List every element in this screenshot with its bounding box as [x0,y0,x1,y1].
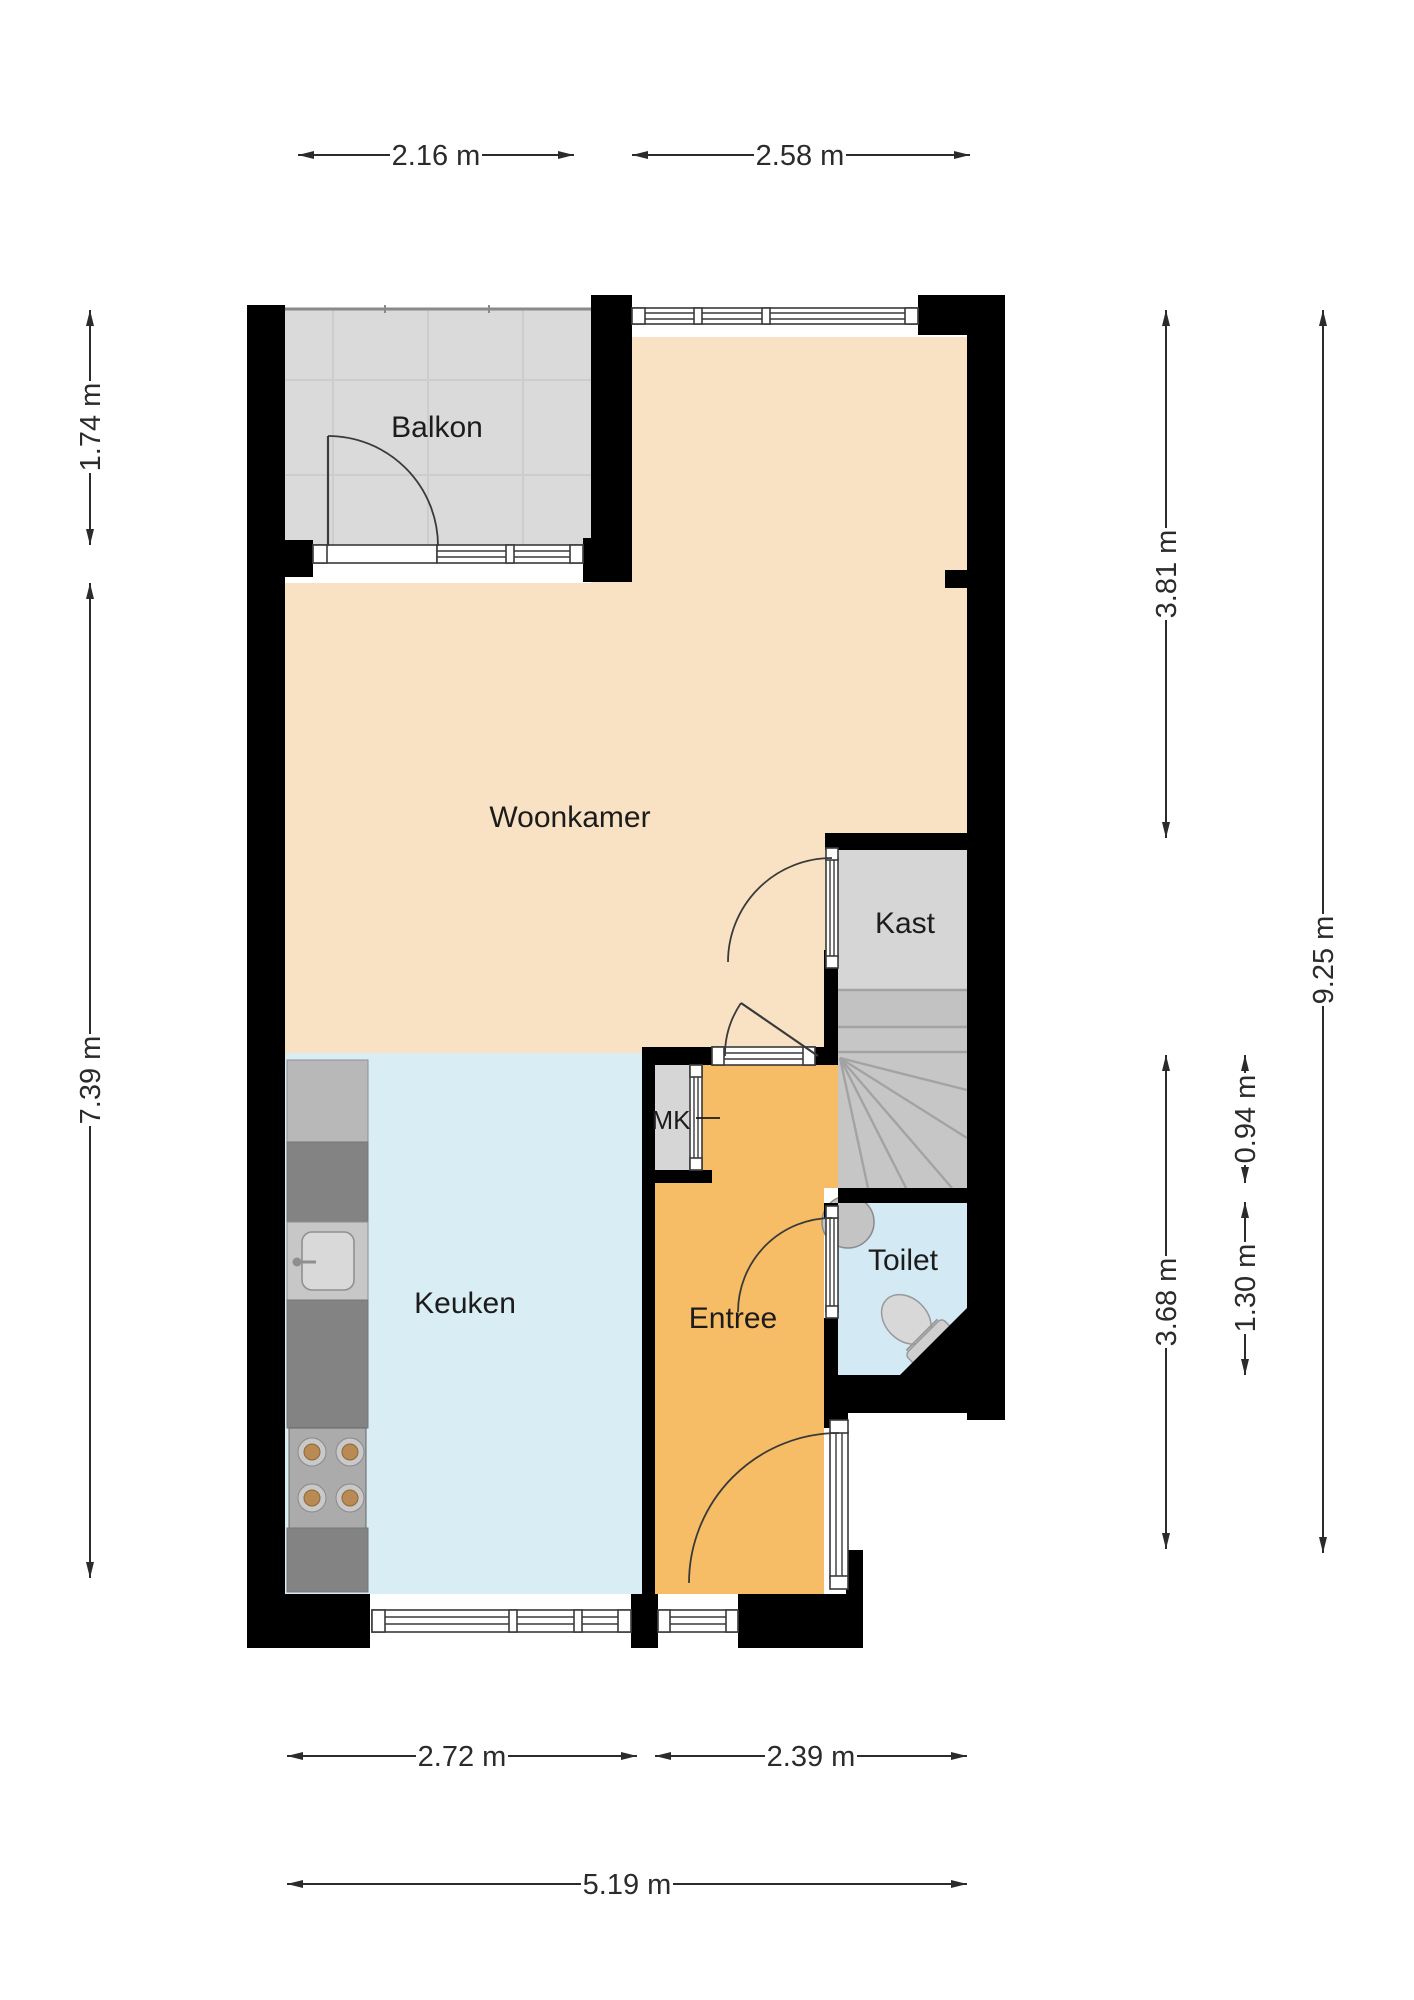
label-woonkamer: Woonkamer [489,801,650,834]
svg-text:2.39 m: 2.39 m [767,1741,856,1773]
dim-right-toilet-height: 1.30 m [1228,1202,1262,1375]
svg-text:2.16 m: 2.16 m [392,140,481,172]
counter-cabinet [287,1060,368,1142]
svg-text:9.25 m: 9.25 m [1308,916,1340,1005]
svg-text:3.68 m: 3.68 m [1151,1258,1183,1347]
dim-right-mk-height: 0.94 m [1228,1055,1262,1183]
svg-text:7.39 m: 7.39 m [75,1036,107,1125]
wall-mk-bottom [642,1170,712,1183]
dim-left-main-depth: 7.39 m [73,583,107,1578]
dim-bottom-entree-width: 2.39 m [655,1739,967,1773]
dim-top-balkon-width: 2.16 m [298,138,574,172]
counter-worktop-1 [287,1142,368,1222]
wall-balkon-stub-left [280,540,313,577]
wall-toilet-bottom [838,1375,1005,1413]
wall-right-stub [945,570,973,588]
counter-worktop-3 [287,1528,368,1592]
balkon-woonkamer-gap [285,563,591,583]
dim-top-woonkamer-width: 2.58 m [632,138,970,172]
wall-balkon-pier [591,295,632,577]
svg-text:1.30 m: 1.30 m [1230,1244,1262,1333]
dim-right-entree-height: 3.68 m [1149,1055,1183,1549]
floor-plan: Balkon Woonkamer Kast MK Keuken Entree T… [0,0,1414,2000]
dim-bottom-keuken-width: 2.72 m [287,1739,637,1773]
entree-window [658,1610,738,1632]
svg-text:1.74 m: 1.74 m [75,383,107,472]
balkon-glass-wall [313,545,583,563]
wall-left-exterior [247,305,285,1648]
label-kast: Kast [875,907,936,940]
label-mk: MK [652,1105,692,1135]
stairs-upper-landing [838,990,967,1027]
dim-left-balkon-depth: 1.74 m [73,310,107,545]
wall-toilet-top [838,1188,1005,1203]
svg-text:3.81 m: 3.81 m [1151,530,1183,619]
kitchen-counter [287,1060,368,1592]
dim-right-woonkamer-height: 3.81 m [1149,310,1183,838]
wall-bottom-left-corner [247,1594,370,1648]
svg-text:2.72 m: 2.72 m [418,1741,507,1773]
counter-worktop-2 [287,1300,368,1428]
wall-balkon-stub-right [583,538,632,582]
wall-bottom-pier [631,1594,658,1648]
wall-kast-top [825,833,1005,850]
wall-bottom-right [738,1594,863,1648]
wall-right-exterior [967,295,1005,1420]
wall-toilet-left-lower [824,1318,838,1418]
keuken-window [372,1610,631,1632]
svg-text:2.58 m: 2.58 m [756,140,845,172]
woonkamer-top-window [632,308,918,324]
label-balkon: Balkon [391,411,483,444]
label-entree: Entree [689,1302,777,1335]
dim-bottom-total-width: 5.19 m [287,1867,967,1901]
label-keuken: Keuken [414,1287,516,1320]
dim-right-total-height: 9.25 m [1306,310,1340,1553]
svg-text:5.19 m: 5.19 m [583,1869,672,1901]
svg-text:0.94 m: 0.94 m [1230,1075,1262,1164]
room-entree-floor-strip [820,1057,838,1188]
label-toilet: Toilet [868,1244,939,1277]
